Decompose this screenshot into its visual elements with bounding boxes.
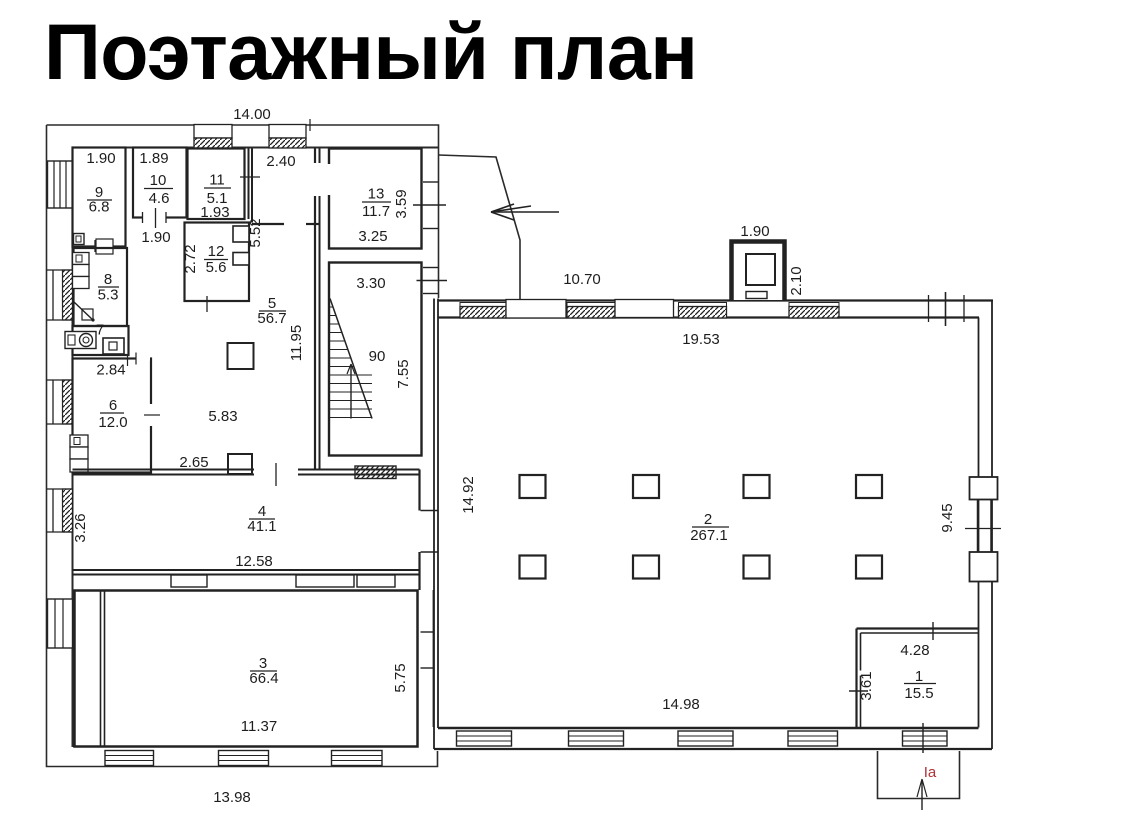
svg-text:12.58: 12.58 — [235, 553, 273, 570]
svg-text:10: 10 — [150, 172, 167, 189]
svg-text:11: 11 — [209, 172, 225, 189]
svg-text:Поэтажный план: Поэтажный план — [44, 7, 697, 96]
svg-text:11.37: 11.37 — [241, 718, 277, 735]
svg-text:11.95: 11.95 — [288, 325, 305, 361]
svg-text:41.1: 41.1 — [247, 518, 276, 535]
svg-text:5.75: 5.75 — [392, 663, 409, 692]
svg-text:1: 1 — [915, 668, 923, 685]
svg-text:4.28: 4.28 — [900, 642, 929, 659]
svg-text:5.6: 5.6 — [206, 259, 227, 276]
svg-text:3.61: 3.61 — [858, 671, 875, 700]
svg-text:15.5: 15.5 — [904, 685, 933, 702]
svg-text:6.8: 6.8 — [89, 199, 110, 216]
svg-text:8: 8 — [104, 271, 112, 288]
svg-text:12: 12 — [208, 243, 225, 260]
svg-text:267.1: 267.1 — [690, 527, 728, 544]
svg-text:2.65: 2.65 — [179, 454, 208, 471]
svg-text:14.92: 14.92 — [460, 476, 477, 514]
svg-text:2.40: 2.40 — [266, 153, 295, 170]
svg-text:5.83: 5.83 — [208, 408, 237, 425]
svg-text:1.90: 1.90 — [740, 223, 769, 240]
svg-text:13.98: 13.98 — [213, 789, 251, 806]
svg-text:6: 6 — [109, 397, 117, 414]
svg-text:11.7: 11.7 — [362, 203, 390, 220]
svg-text:14.98: 14.98 — [662, 696, 700, 713]
svg-text:4.6: 4.6 — [149, 190, 170, 207]
svg-text:10.70: 10.70 — [563, 271, 601, 288]
svg-text:9.45: 9.45 — [939, 503, 956, 532]
svg-text:2: 2 — [704, 511, 712, 528]
svg-text:56.7: 56.7 — [257, 310, 286, 327]
svg-text:19.53: 19.53 — [682, 331, 720, 348]
svg-text:2.72: 2.72 — [182, 244, 199, 273]
svg-text:3.30: 3.30 — [356, 275, 385, 292]
svg-text:7: 7 — [96, 322, 104, 339]
svg-text:2.10: 2.10 — [788, 266, 805, 295]
svg-text:5.3: 5.3 — [98, 287, 119, 304]
svg-text:3.25: 3.25 — [358, 228, 387, 245]
svg-text:1.90: 1.90 — [141, 229, 170, 246]
svg-text:Iа: Iа — [924, 764, 937, 781]
svg-text:1.93: 1.93 — [200, 204, 229, 221]
svg-text:1.90: 1.90 — [86, 150, 115, 167]
svg-text:1.89: 1.89 — [139, 150, 168, 167]
svg-text:3.59: 3.59 — [393, 189, 410, 218]
svg-text:14.00: 14.00 — [233, 106, 271, 123]
svg-text:13: 13 — [368, 186, 385, 203]
svg-text:3.26: 3.26 — [72, 513, 89, 542]
svg-text:7.55: 7.55 — [395, 359, 412, 388]
svg-text:5.52: 5.52 — [247, 218, 264, 247]
svg-text:2.84: 2.84 — [96, 362, 125, 379]
svg-text:12.0: 12.0 — [98, 414, 127, 431]
svg-text:66.4: 66.4 — [249, 670, 278, 687]
svg-text:90: 90 — [369, 348, 386, 365]
